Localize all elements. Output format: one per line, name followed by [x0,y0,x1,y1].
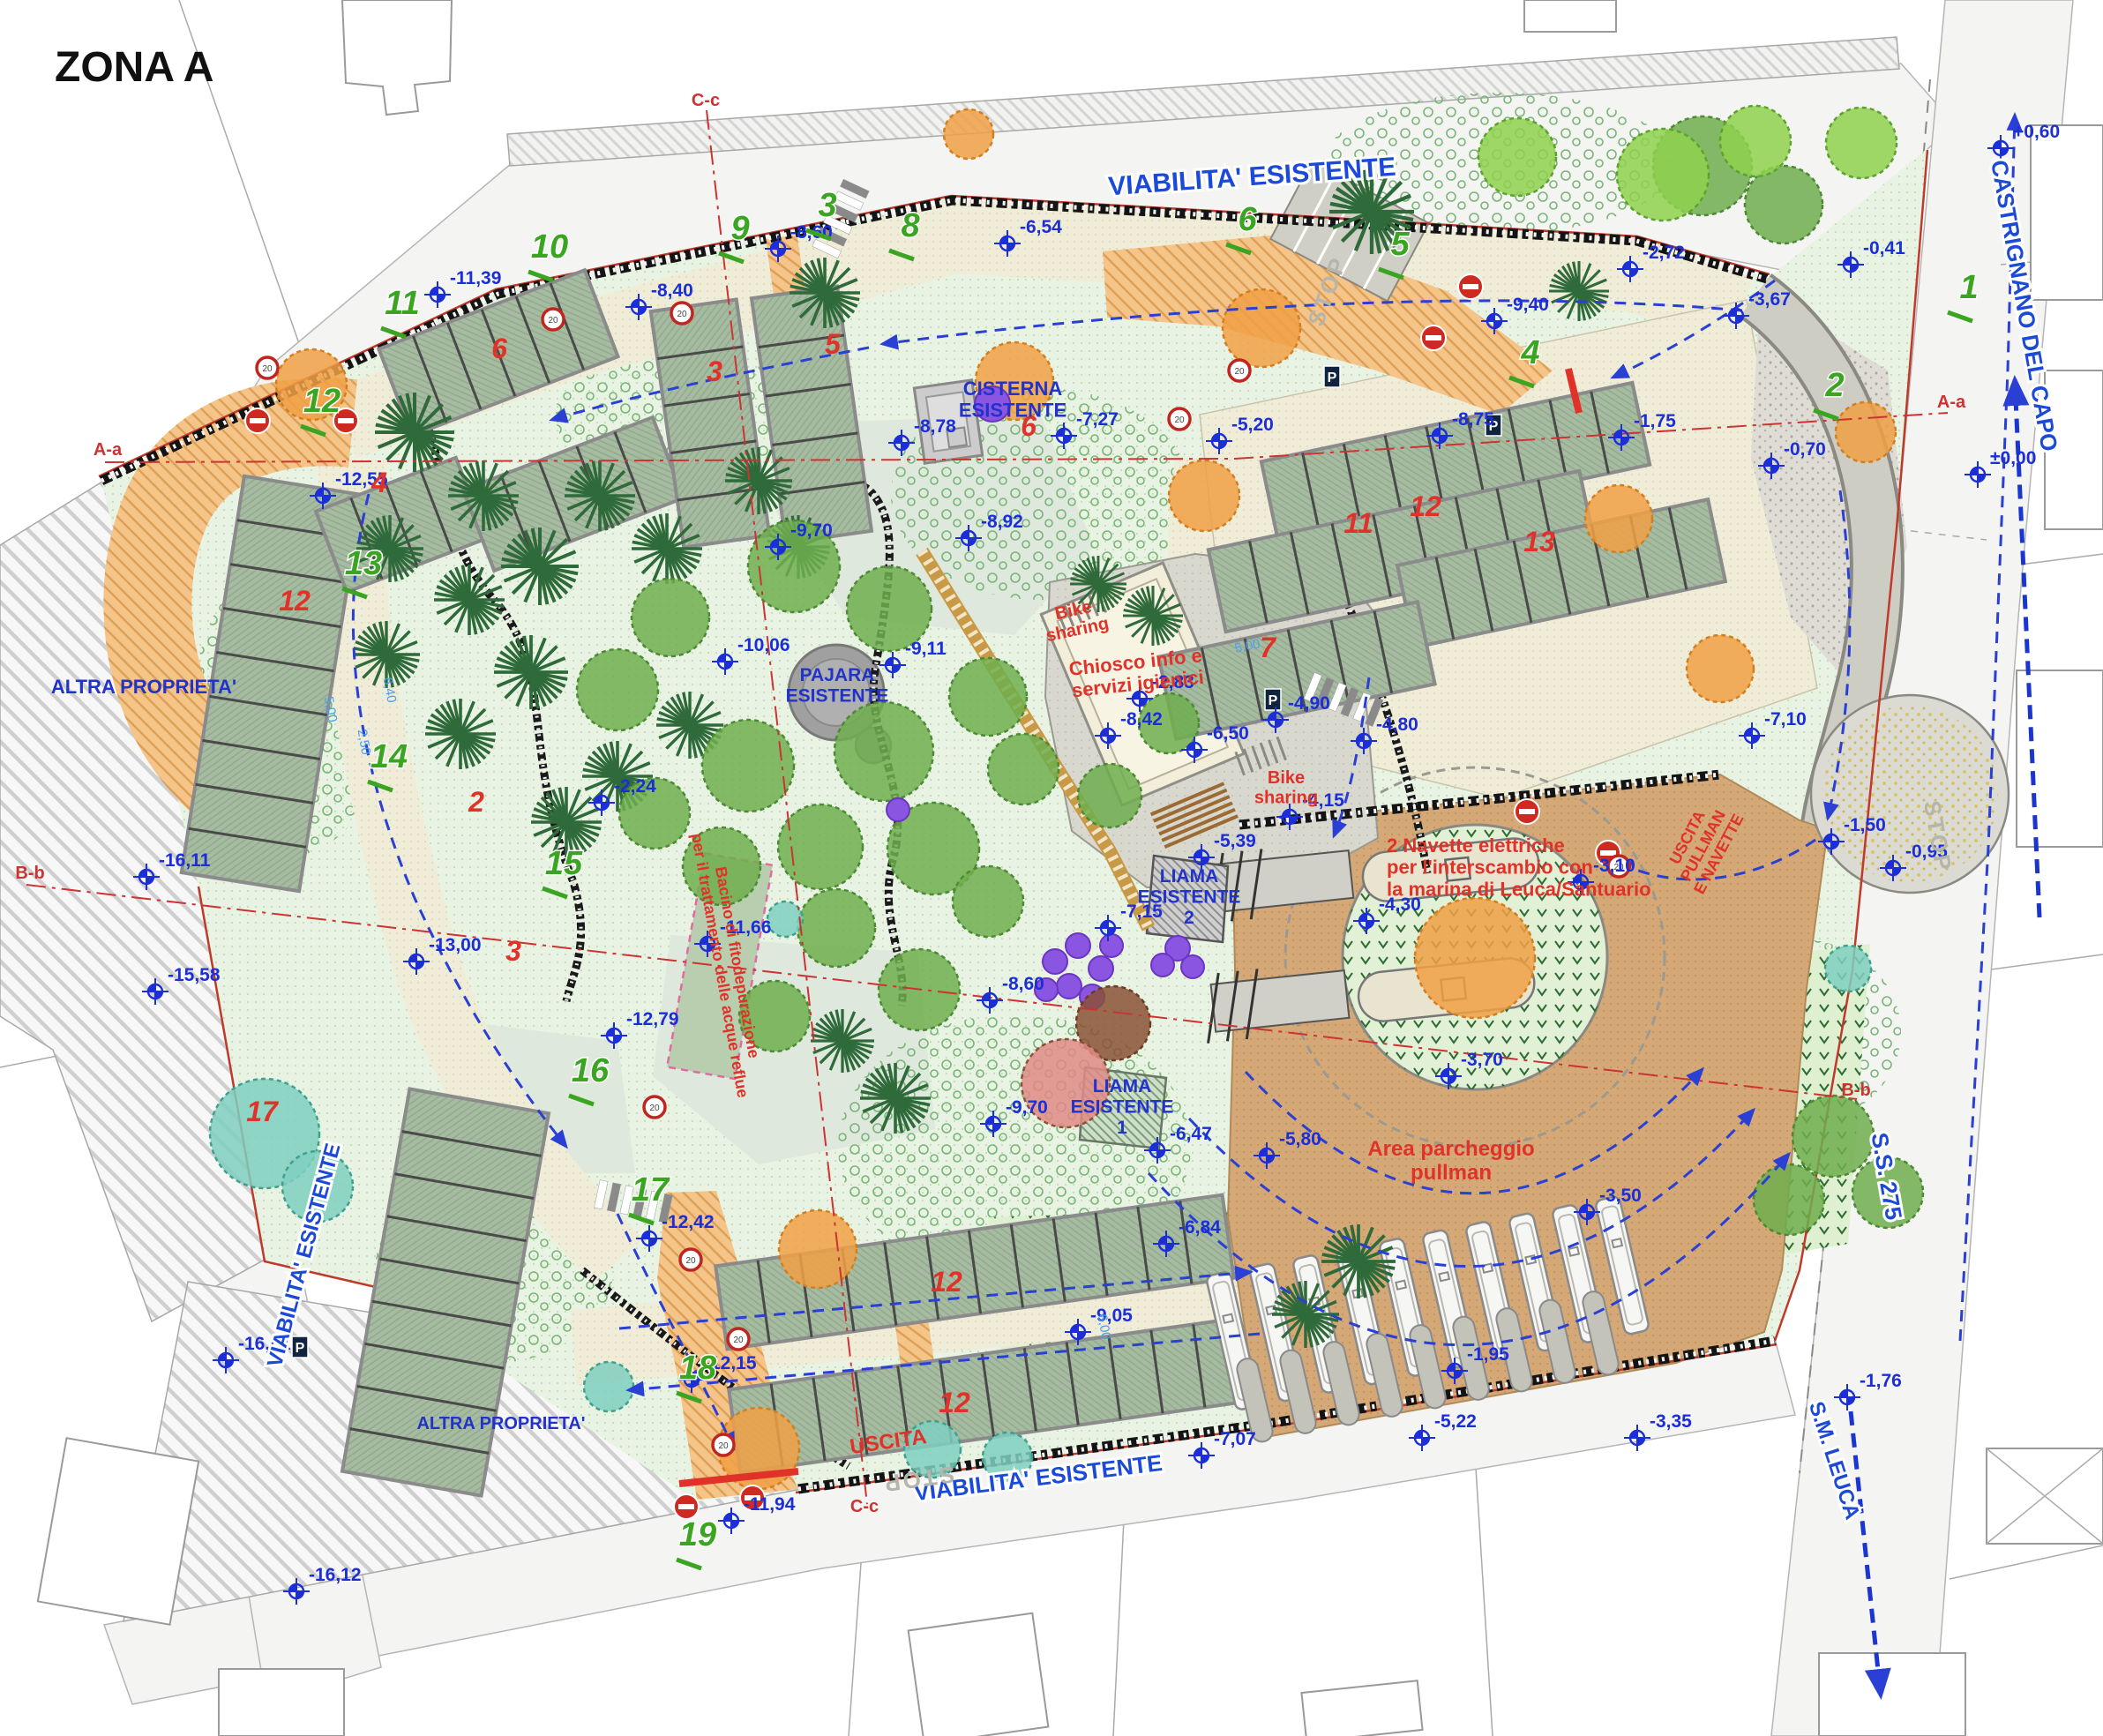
elevation-value: -7,27 [1076,409,1119,430]
zone-number: 10 [531,228,568,266]
parking-row-number: 3 [505,935,521,967]
elevation-value: -3,70 [1461,1050,1503,1070]
elevation-value: -6,47 [1170,1124,1212,1144]
purple-flower-icon [887,798,909,821]
elevation-value: -4,80 [1376,715,1418,735]
no-entry-sign [674,1494,699,1519]
pine-tree-icon [811,1009,874,1073]
speed-limit-20-sign [1169,408,1190,430]
leafy-tree-icon [1745,166,1822,243]
parking-row-number: 6 [491,333,507,364]
lime-tree-icon [1617,129,1709,221]
no-entry-sign [1458,274,1483,299]
speed-limit-20-sign [680,1249,701,1270]
orange-tree-icon [1585,485,1652,552]
orange-tree-icon [944,109,993,159]
leafy-tree-icon [577,649,658,730]
speed-limit-20-sign [1229,360,1250,381]
orange-tree-icon [1415,898,1535,1018]
zone-number: 6 [1238,201,1257,238]
elevation-value: -11,39 [450,268,501,288]
elevation-value: -16,11 [159,850,211,871]
elevation-value: -3,35 [1650,1411,1692,1432]
no-entry-sign [1515,799,1539,824]
feature-label: CISTERNAESISTENTE [959,378,1066,422]
zone-number: 13 [345,545,382,582]
zone-number: 9 [730,210,749,247]
pine-tree-icon [565,460,635,531]
elevation-value: -9,40 [1507,295,1549,315]
purple-flower-icon [1057,974,1081,999]
teal-shrub-icon [767,902,803,937]
elevation-value: -8,78 [914,416,956,437]
elevation-value: -1,95 [1467,1344,1509,1365]
leafy-tree-icon [702,720,794,812]
pine-tree-icon [434,565,505,635]
zone-number: 14 [370,738,408,775]
feature-label: PAJARAESISTENTE [786,665,889,707]
section-marker-label: A-a [94,440,123,460]
pine-tree-icon [1272,1281,1339,1348]
leafy-tree-icon [1754,1164,1824,1235]
elevation-value: -8,42 [1120,709,1163,730]
feature-label: ALTRA PROPRIETA' [416,1414,585,1433]
lime-tree-icon [1826,108,1897,178]
parking-row-number: 12 [931,1266,962,1298]
elevation-value: -6,84 [1179,1217,1221,1238]
leafy-tree-icon [988,734,1059,804]
elevation-value: -6,50 [1207,723,1249,744]
zone-number: 15 [545,845,583,882]
purple-flower-icon [1100,934,1123,957]
elevation-value: -5,20 [1231,415,1274,435]
zone-number: 18 [679,1350,717,1387]
speed-limit-20-sign [644,1096,665,1118]
zone-number: 19 [679,1516,716,1553]
parking-sign-letter: P [296,1341,305,1356]
pine-tree-icon [448,460,519,531]
feature-label: ALTRA PROPRIETA' [51,676,236,698]
elevation-value: -3,50 [1599,1186,1642,1206]
parking-sign: P [1324,366,1340,387]
speed-limit-20-sign [671,303,692,324]
lime-tree-icon [1720,106,1791,176]
elevation-value: -9,11 [905,639,947,659]
elevation-value: -8,92 [981,512,1023,532]
elevation-value: -1,76 [1860,1371,1902,1391]
teal-shrub-icon [1825,946,1871,991]
elevation-value: -12,42 [662,1212,715,1232]
orange-tree-icon [1687,635,1754,702]
zone-number: 1 [1959,269,1978,306]
leafy-tree-icon [949,658,1027,736]
teal-shrub-icon [584,1362,633,1411]
parking-sign-letter: P [1328,370,1337,385]
plan-canvas: 20 [0,0,2103,1736]
pine-tree-icon [632,513,702,584]
pine-tree-icon [790,258,860,328]
elevation-value: -12,79 [626,1009,679,1029]
section-marker-label: C-c [692,91,720,110]
purple-flower-icon [1151,954,1174,976]
orange-tree-icon [1836,402,1896,462]
parking-row-number: 7 [1260,632,1277,663]
speed-limit-20-sign [713,1434,734,1455]
pine-tree-icon [501,528,579,605]
zone-number: 12 [303,383,341,420]
pine-tree-icon [860,1063,931,1134]
elevation-value: -1,75 [1634,411,1676,431]
zone-number: 2 [1824,367,1844,404]
parking-sign: P [1265,689,1281,710]
leafy-tree-icon [953,866,1023,937]
zone-number: 5 [1390,226,1410,263]
leafy-tree-icon [1078,764,1141,827]
elevation-value: -6,54 [1020,217,1062,237]
elevation-value: -5,39 [1214,831,1256,851]
building [1301,1680,1422,1736]
elevation-value: +0,60 [2013,122,2060,142]
parking-row-number: 13 [1523,526,1555,557]
zone-number: 3 [818,187,836,224]
section-marker-label: C-c [850,1497,879,1516]
building [909,1613,1049,1736]
building [1819,1653,1965,1736]
parking-row-number: 12 [939,1387,970,1418]
building-crossed [1987,1448,2103,1544]
parking-row-number: 3 [707,355,722,387]
pine-tree-icon [725,447,792,514]
building [1524,0,1616,32]
parking-row-number: 4 [370,467,387,498]
parking-sign-letter: P [1269,693,1278,708]
elevation-value: -3,10 [1593,856,1635,876]
elevation-value: -8,40 [651,281,693,301]
parking-row-number: 12 [1410,490,1441,522]
building [219,1669,344,1736]
elevation-value: -9,70 [790,520,833,541]
no-entry-sign [1421,325,1446,350]
parking-row-number: 2 [468,786,484,818]
parking-row-number: 17 [246,1096,280,1127]
purple-flower-icon [1066,933,1090,958]
elevation-value: -7,10 [1764,709,1807,730]
orange-tree-icon [779,1210,857,1288]
elevation-value: -8,75 [1452,409,1494,430]
zone-number: 4 [1520,334,1539,371]
elevation-value: ±0,00 [1990,448,2036,468]
elevation-value: -10,06 [737,635,790,655]
zone-number: 11 [385,285,419,322]
parking-row-number: 12 [279,585,311,617]
elevation-value: -9,70 [1006,1097,1048,1118]
section-marker-label: B-b [1841,1081,1870,1100]
parking-sign: P [292,1336,308,1358]
elevation-value: -16,12 [309,1565,362,1585]
zone-number: 16 [572,1052,610,1089]
leafy-tree-icon [797,889,875,967]
elevation-value: -8,60 [1002,974,1044,994]
section-marker-label: B-b [15,864,44,883]
elevation-value: -5,22 [1434,1411,1477,1432]
parking-row-number: 5 [825,328,842,360]
site-plan-drawing: 20 [0,0,2103,1736]
elevation-value: -4,90 [1288,693,1330,714]
building [38,1438,198,1625]
zone-number: 17 [632,1171,670,1208]
no-entry-sign [245,408,270,433]
lime-tree-icon [1478,118,1556,196]
purple-flower-icon [1181,955,1204,978]
elevation-value: -0,41 [1863,238,1905,258]
elevation-value: -7,07 [1214,1429,1256,1449]
leafy-tree-icon [834,702,933,801]
elevation-value: -5,80 [1279,1129,1321,1149]
building [342,0,452,115]
feature-label: ZONA A [55,44,213,91]
leafy-tree-icon [632,579,709,656]
pine-tree-icon [375,393,454,472]
elevation-value: -0,70 [1784,439,1826,460]
purple-flower-icon [1043,949,1067,974]
zone-number: 8 [901,207,920,244]
speed-limit-20-sign [257,357,278,378]
orange-tree-icon [1223,289,1300,367]
building [2031,125,2103,300]
speed-limit-20-sign [728,1328,749,1350]
parking-row-number: 11 [1343,507,1373,539]
orange-tree-icon [1169,460,1239,531]
purple-flower-icon [1089,956,1113,981]
section-marker-label: A-a [1937,393,1966,412]
pine-tree-icon [425,699,496,769]
elevation-value: -13,00 [429,935,482,955]
elevation-value: -15,58 [168,965,221,985]
elevation-value: -3,67 [1748,289,1791,310]
speed-limit-20-sign [543,309,564,330]
elevation-value: -1,50 [1844,815,1886,835]
elevation-value: -11,94 [744,1494,796,1515]
leafy-tree-icon [1792,1096,1874,1177]
elevation-value: -2,72 [1643,243,1685,263]
elevation-value: -2,24 [614,776,656,797]
